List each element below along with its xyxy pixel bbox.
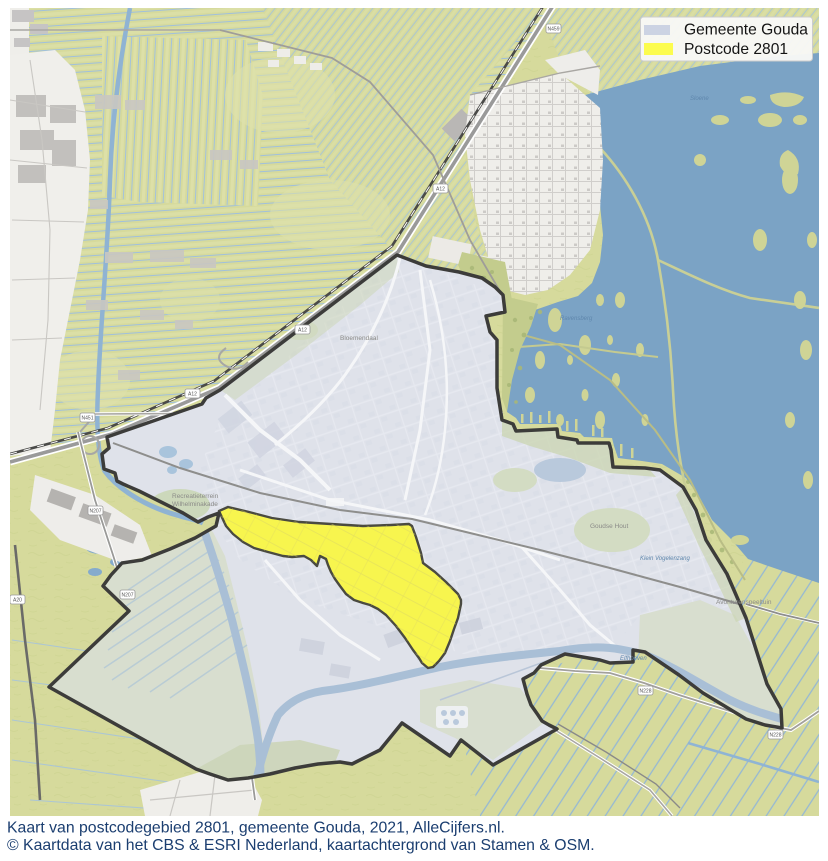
svg-text:Elfhoeven: Elfhoeven — [620, 656, 647, 662]
svg-text:Sloene: Sloene — [690, 96, 709, 102]
svg-text:Recreatieterrein: Recreatieterrein — [172, 493, 219, 500]
svg-text:Postcode 2801: Postcode 2801 — [684, 41, 788, 58]
svg-text:Wilhelminakade: Wilhelminakade — [172, 501, 218, 508]
svg-text:Gemeente Gouda: Gemeente Gouda — [684, 22, 808, 39]
svg-text:A12: A12 — [436, 187, 445, 193]
svg-text:N451: N451 — [82, 416, 94, 422]
svg-text:N207: N207 — [122, 593, 134, 599]
svg-text:A12: A12 — [298, 328, 307, 334]
svg-text:A12: A12 — [188, 392, 197, 398]
svg-text:Goudse Hout: Goudse Hout — [590, 523, 628, 530]
svg-text:N459: N459 — [548, 27, 560, 33]
svg-text:N207: N207 — [90, 509, 102, 515]
svg-text:Kaart van postcodegebied 2801,: Kaart van postcodegebied 2801, gemeente … — [7, 819, 505, 836]
svg-text:Klein Vogelenzang: Klein Vogelenzang — [640, 556, 690, 562]
svg-text:N228: N228 — [770, 733, 782, 739]
svg-text:Ravensberg: Ravensberg — [560, 316, 593, 322]
svg-text:Avonturenspeeltuin: Avonturenspeeltuin — [716, 599, 772, 606]
svg-text:N228: N228 — [640, 689, 652, 695]
svg-text:A20: A20 — [13, 598, 22, 604]
svg-text:© Kaartdata van het CBS & ESRI: © Kaartdata van het CBS & ESRI Nederland… — [7, 837, 595, 854]
svg-text:Bloemendaal: Bloemendaal — [340, 335, 378, 342]
